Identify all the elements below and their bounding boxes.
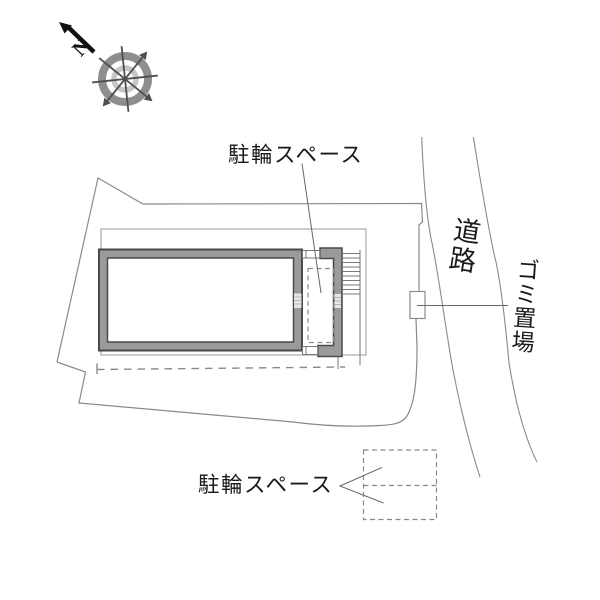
bicycle-parking-upper (308, 269, 334, 343)
road-edge-left (422, 137, 480, 477)
north-arrow: N (59, 22, 95, 61)
leader-bike-top (302, 164, 321, 294)
bicycle-parking-lower (364, 450, 437, 520)
building-window-mark (294, 294, 302, 309)
north-letter: N (67, 33, 95, 60)
building-interior (108, 258, 294, 342)
garbage-area-label: ゴミ置場 (503, 257, 544, 355)
bicycle-space-label-bottom: 駐輪スペース (198, 468, 333, 499)
bicycle-space-label-top: 駐輪スペース (228, 138, 363, 169)
entrance-wall (303, 248, 343, 369)
stairs (342, 250, 360, 365)
setback-dashed-line (97, 364, 345, 375)
building (99, 250, 302, 351)
entrance-window-mark (335, 294, 342, 308)
site-plan: N 駐輪スペース 道路 ゴミ置場 駐輪スペース (0, 0, 600, 600)
compass-rose: N (59, 22, 161, 115)
